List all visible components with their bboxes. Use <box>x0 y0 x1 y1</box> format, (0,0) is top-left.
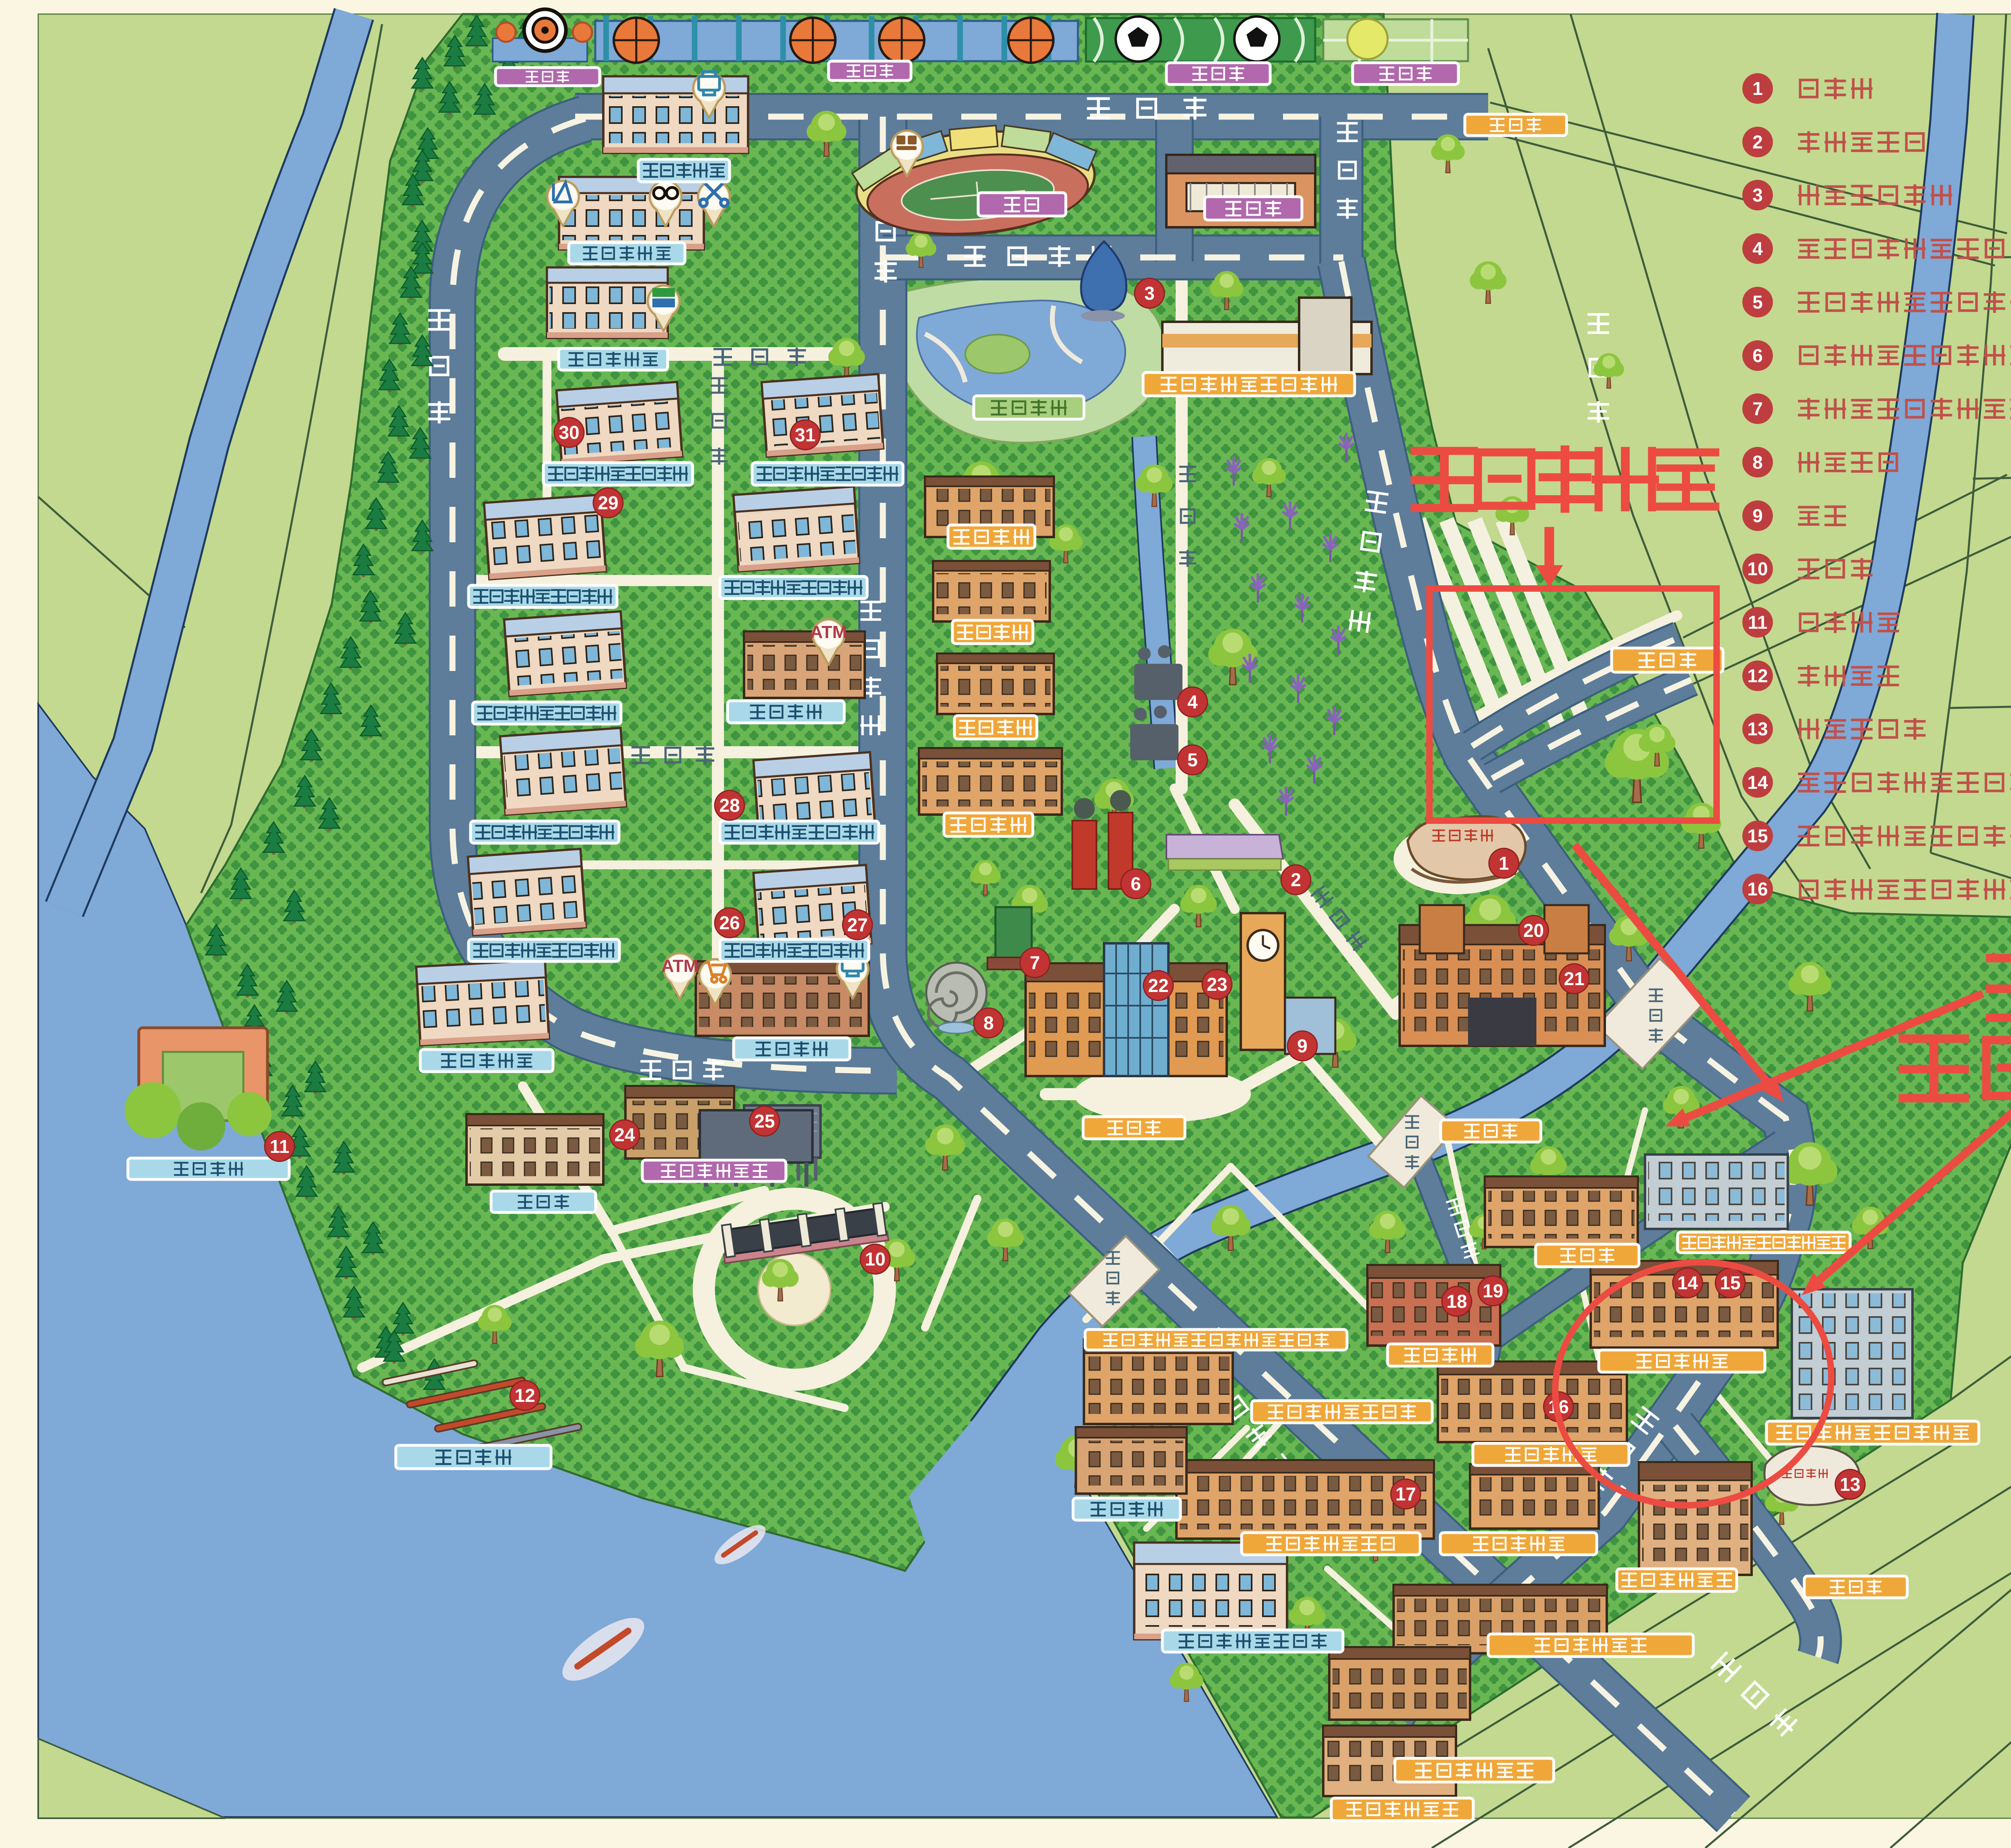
svg-text:1: 1 <box>1752 78 1763 99</box>
svg-text:28: 28 <box>719 795 740 816</box>
svg-text:24: 24 <box>614 1124 635 1145</box>
svg-text:7: 7 <box>1752 398 1763 419</box>
svg-text:27: 27 <box>847 914 868 935</box>
svg-text:10: 10 <box>1747 558 1768 579</box>
svg-text:14: 14 <box>1747 772 1768 793</box>
svg-text:ATM: ATM <box>661 956 698 976</box>
svg-text:5: 5 <box>1187 749 1198 770</box>
svg-text:14: 14 <box>1677 1272 1698 1293</box>
svg-text:17: 17 <box>1395 1484 1416 1504</box>
svg-text:4: 4 <box>1187 691 1198 712</box>
svg-text:30: 30 <box>559 422 579 443</box>
svg-text:10: 10 <box>865 1249 885 1270</box>
svg-text:6: 6 <box>1131 873 1141 894</box>
svg-text:26: 26 <box>719 912 740 933</box>
svg-text:6: 6 <box>1752 345 1763 366</box>
svg-text:25: 25 <box>754 1111 775 1132</box>
svg-text:2: 2 <box>1291 869 1301 890</box>
svg-text:ATM: ATM <box>810 622 847 642</box>
svg-text:7: 7 <box>1030 952 1040 973</box>
svg-text:29: 29 <box>598 492 618 513</box>
svg-text:12: 12 <box>1747 665 1768 686</box>
svg-text:3: 3 <box>1144 283 1155 304</box>
svg-text:12: 12 <box>514 1385 535 1406</box>
svg-text:11: 11 <box>270 1136 290 1157</box>
svg-text:11: 11 <box>1748 612 1768 633</box>
svg-text:23: 23 <box>1207 974 1227 995</box>
svg-text:1: 1 <box>1499 853 1509 874</box>
svg-text:8: 8 <box>983 1012 994 1033</box>
svg-text:2: 2 <box>1752 132 1763 152</box>
svg-text:13: 13 <box>1840 1474 1860 1495</box>
svg-text:19: 19 <box>1483 1280 1503 1301</box>
svg-text:9: 9 <box>1297 1035 1308 1056</box>
svg-text:31: 31 <box>795 424 815 445</box>
svg-text:16: 16 <box>1747 879 1768 899</box>
svg-text:13: 13 <box>1747 718 1768 739</box>
svg-text:15: 15 <box>1720 1272 1740 1293</box>
svg-text:3: 3 <box>1752 185 1763 206</box>
svg-text:5: 5 <box>1752 292 1763 313</box>
svg-text:22: 22 <box>1148 975 1168 996</box>
svg-text:4: 4 <box>1752 238 1763 259</box>
svg-text:21: 21 <box>1564 968 1584 989</box>
svg-text:8: 8 <box>1752 452 1763 473</box>
svg-text:15: 15 <box>1747 825 1768 846</box>
svg-text:20: 20 <box>1523 920 1544 941</box>
svg-text:18: 18 <box>1446 1291 1467 1312</box>
svg-text:9: 9 <box>1752 505 1763 526</box>
